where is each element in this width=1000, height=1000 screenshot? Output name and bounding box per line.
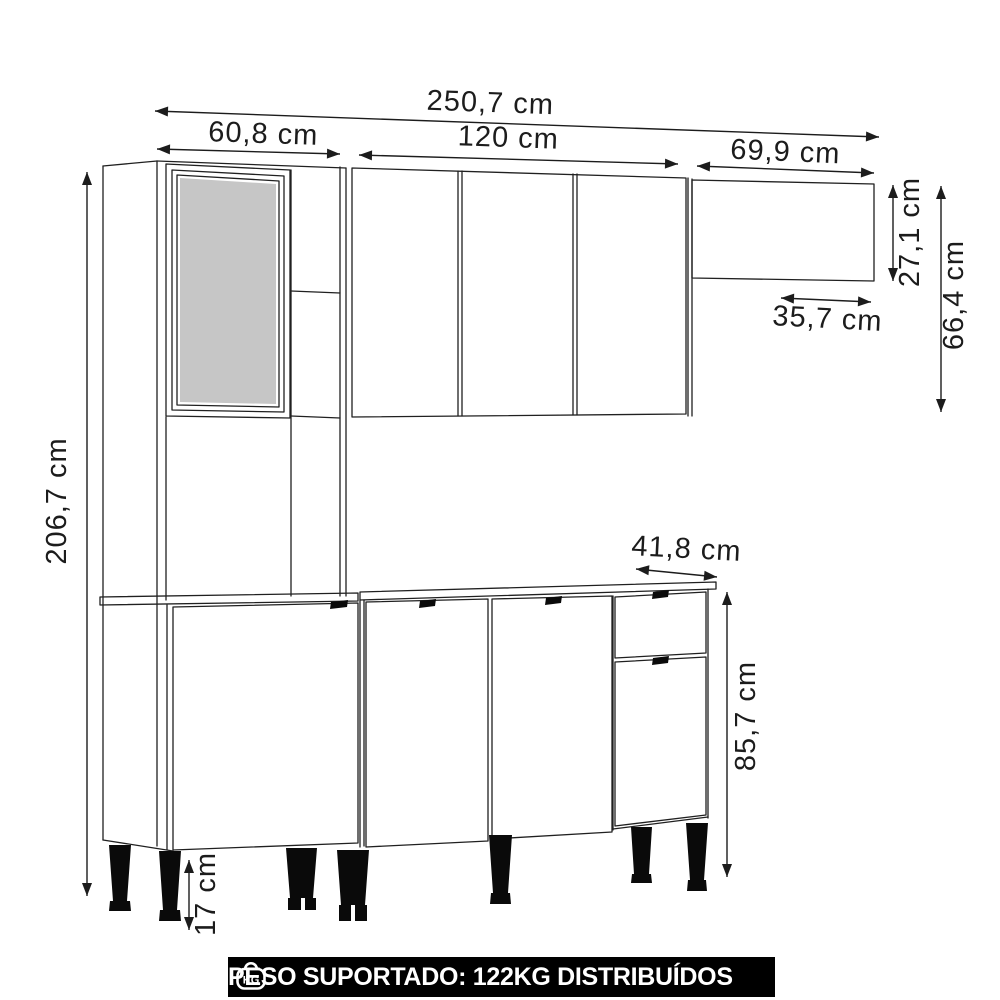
product-dimension-diagram: 250,7 cm 60,8 cm 120 cm 69,9 cm 27,1 cm … <box>0 0 1000 1000</box>
leg-1 <box>109 845 131 911</box>
weight-capacity-text: PESO SUPORTADO: 122KG DISTRIBUÍDOS <box>228 963 733 992</box>
glass-panel <box>180 178 276 404</box>
dim-base-width-line <box>636 569 717 577</box>
shelf-box-outline <box>692 180 874 281</box>
leg-3 <box>286 848 317 910</box>
tall-cabinet-side-top-edge <box>103 161 157 166</box>
dim-shelf-height-label: 27,1 cm <box>894 177 926 287</box>
leg-5 <box>489 835 512 904</box>
dim-middle-width-line <box>359 155 678 164</box>
base-cabinet-right <box>360 582 716 847</box>
shelf-column-divider-2 <box>291 416 340 418</box>
dim-total-width-label: 250,7 cm <box>426 85 554 121</box>
wall-cabinet <box>352 168 686 417</box>
dim-left-width-label: 60,8 cm <box>208 116 319 152</box>
dim-total-height-label: 206,7 cm <box>41 437 73 564</box>
leg-4 <box>337 850 369 921</box>
base-door-2 <box>366 599 488 847</box>
shelf-column-divider-1 <box>291 291 340 293</box>
drawer-face <box>615 592 706 658</box>
dim-leg-height-label: 17 cm <box>190 852 222 936</box>
glass-door <box>166 164 290 418</box>
drawer-unit <box>613 589 708 830</box>
kg-weight-icon-label: KG <box>243 975 260 987</box>
tall-cabinet <box>103 161 346 851</box>
right-wall-shelf <box>688 178 874 416</box>
dim-base-width-label: 41,8 cm <box>631 530 743 568</box>
open-shelf-column <box>291 170 340 596</box>
base-door-1 <box>173 603 358 850</box>
kitchen-diagram-svg: 250,7 cm 60,8 cm 120 cm 69,9 cm 27,1 cm … <box>0 0 1000 1000</box>
dim-right-width-label: 69,9 cm <box>730 134 841 171</box>
kg-weight-icon: KG <box>233 957 269 991</box>
base-cabinet-left <box>100 593 358 850</box>
leg-2 <box>159 851 181 921</box>
base-door-4 <box>615 657 706 826</box>
dim-middle-width-label: 120 cm <box>457 120 559 156</box>
dim-shelf-depth-label: 35,7 cm <box>772 300 884 338</box>
base-door-3 <box>492 596 612 839</box>
leg-7 <box>686 823 708 891</box>
leg-6 <box>631 827 652 883</box>
dim-base-height-label: 85,7 cm <box>730 661 762 771</box>
wall-cabinet-outline <box>352 168 686 417</box>
dim-upper-height-label: 66,4 cm <box>938 240 970 350</box>
weight-capacity-banner: KG PESO SUPORTADO: 122KG DISTRIBUÍDOS <box>228 957 775 997</box>
base-door-4-handle <box>652 656 669 665</box>
